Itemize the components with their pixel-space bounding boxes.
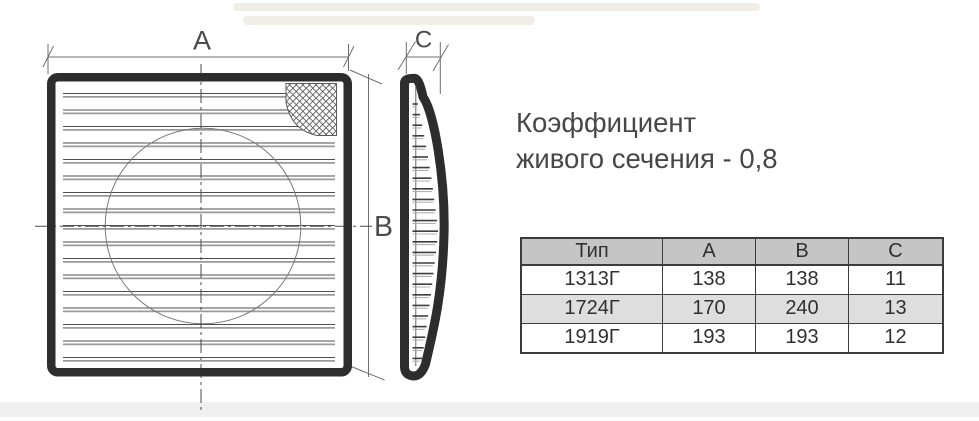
svg-text:B: B (374, 211, 393, 243)
svg-text:C: C (415, 27, 432, 54)
svg-text:A: A (193, 26, 211, 56)
